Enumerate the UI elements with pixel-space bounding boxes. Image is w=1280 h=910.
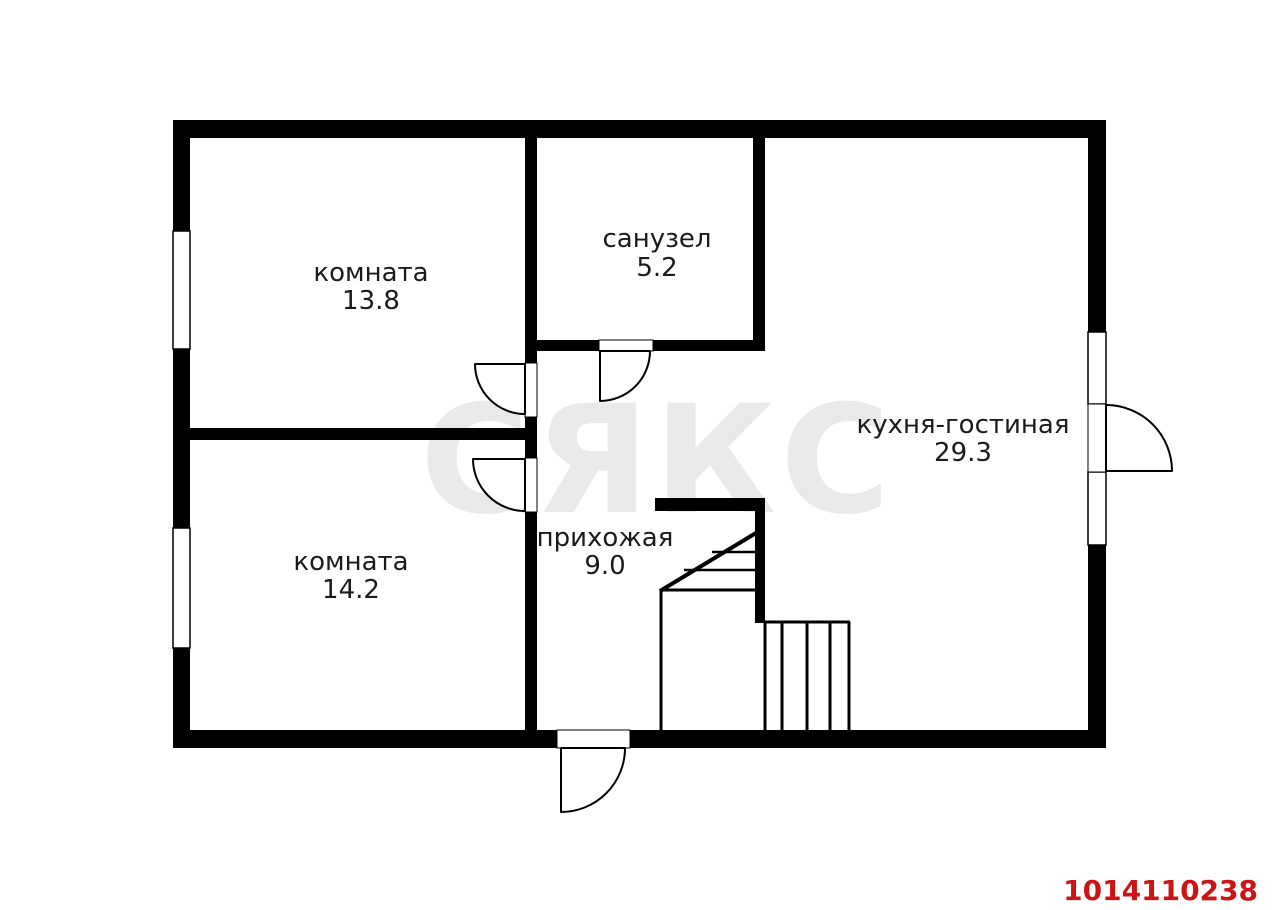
label-bathroom-area: 5.2 xyxy=(636,253,677,283)
label-room-14-2-name: комната xyxy=(293,547,408,577)
wall-bottom-right xyxy=(630,730,1106,748)
window-left-lower xyxy=(173,528,190,648)
door-balcony xyxy=(1106,405,1172,471)
label-bathroom-name: санузел xyxy=(602,224,711,254)
wall-hallway-upper xyxy=(525,138,537,363)
wall-bottom-left xyxy=(173,730,557,748)
floor-plan-page: СЯКС xyxy=(0,0,1280,910)
label-kitchen-living-name: кухня-гостиная xyxy=(857,410,1070,440)
window-right-upper xyxy=(1088,332,1106,404)
stair-right-bar xyxy=(755,498,765,623)
wall-right-upper xyxy=(1088,120,1106,332)
window-left-upper xyxy=(173,231,190,349)
wall-rooms-divider xyxy=(190,428,537,440)
stair-top-bar xyxy=(655,498,765,511)
label-room-13-8-area: 13.8 xyxy=(342,286,400,316)
opening-bathroom-door xyxy=(599,340,653,351)
opening-entrance-door xyxy=(557,730,630,748)
opening-room-14-2-door xyxy=(525,458,537,512)
wall-left-upper xyxy=(173,120,190,231)
wall-left-middle xyxy=(173,349,190,528)
opening-room-13-8-door xyxy=(525,363,537,417)
label-hallway-area: 9.0 xyxy=(584,551,625,581)
opening-balcony-door xyxy=(1088,404,1106,472)
label-room-14-2-area: 14.2 xyxy=(322,575,380,605)
wall-right-lower xyxy=(1088,545,1106,748)
wall-hallway-lower xyxy=(525,512,537,730)
wall-bathroom-east xyxy=(753,138,765,351)
wall-top xyxy=(173,120,1106,138)
door-entrance xyxy=(561,748,625,812)
wall-bathroom-south-right xyxy=(653,340,765,351)
label-hallway-name: прихожая xyxy=(537,523,674,553)
label-room-13-8-name: комната xyxy=(313,258,428,288)
wall-bathroom-south-left xyxy=(537,340,599,351)
listing-id: 1014110238 xyxy=(1063,874,1258,907)
window-right-lower xyxy=(1088,472,1106,545)
floor-plan-drawing: СЯКС xyxy=(0,0,1280,910)
label-kitchen-living-area: 29.3 xyxy=(934,438,992,468)
